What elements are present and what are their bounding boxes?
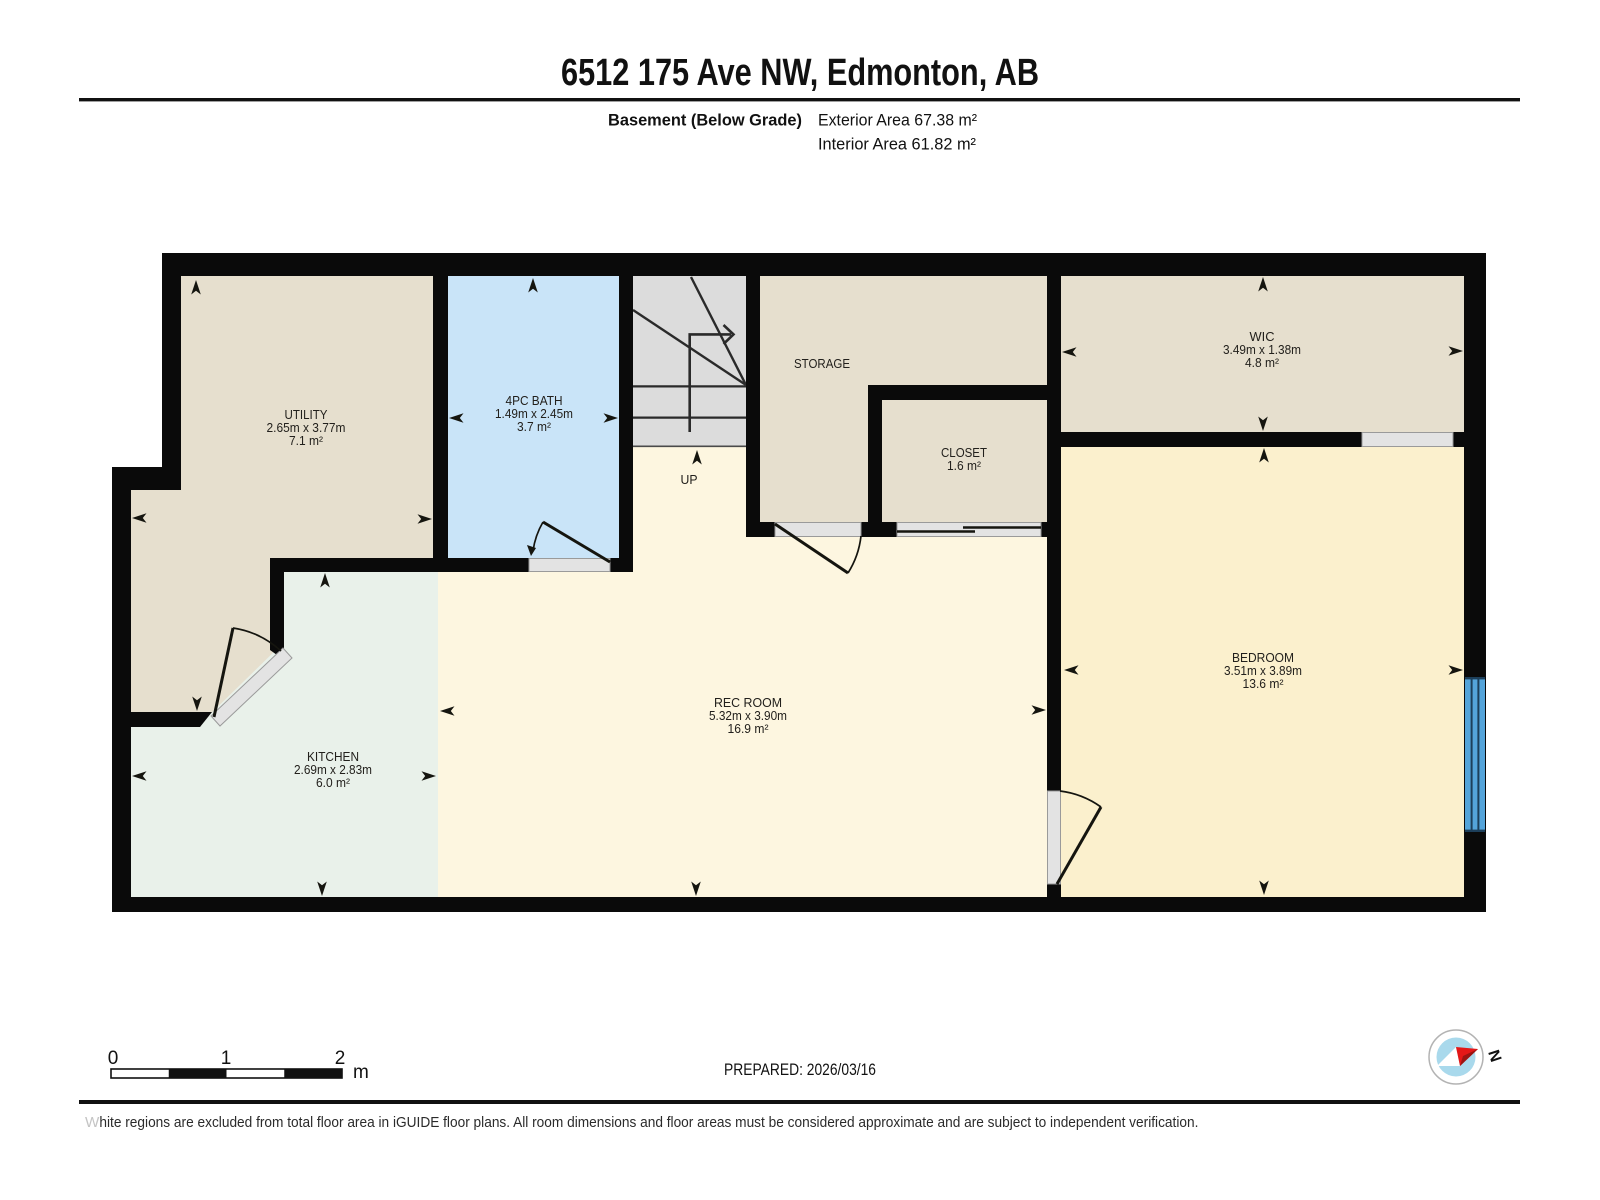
svg-text:m: m	[353, 1062, 369, 1083]
svg-text:1.6 m²: 1.6 m²	[947, 458, 982, 473]
svg-text:PREPARED: 2026/03/16: PREPARED: 2026/03/16	[724, 1060, 876, 1079]
svg-text:4.8 m²: 4.8 m²	[1245, 355, 1280, 370]
svg-text:6512 175 Ave NW, Edmonton, AB: 6512 175 Ave NW, Edmonton, AB	[561, 52, 1039, 94]
svg-text:STORAGE: STORAGE	[794, 356, 850, 371]
svg-text:Basement (Below Grade): Basement (Below Grade)	[608, 111, 802, 130]
svg-text:1: 1	[221, 1048, 232, 1069]
svg-text:Exterior Area 67.38 m²: Exterior Area 67.38 m²	[818, 111, 977, 130]
svg-text:3.7 m²: 3.7 m²	[517, 419, 552, 434]
svg-text:hite regions are excluded from: hite regions are excluded from total flo…	[99, 1114, 1198, 1131]
svg-text:2: 2	[335, 1048, 346, 1069]
svg-text:6.0 m²: 6.0 m²	[316, 775, 351, 790]
svg-text:UP: UP	[681, 472, 698, 487]
svg-text:13.6 m²: 13.6 m²	[1243, 676, 1285, 691]
svg-text:16.9 m²: 16.9 m²	[728, 721, 770, 736]
svg-text:W: W	[85, 1114, 100, 1131]
svg-text:7.1 m²: 7.1 m²	[289, 433, 324, 448]
svg-text:0: 0	[108, 1048, 119, 1069]
svg-text:Interior Area 61.82 m²: Interior Area 61.82 m²	[818, 135, 976, 154]
